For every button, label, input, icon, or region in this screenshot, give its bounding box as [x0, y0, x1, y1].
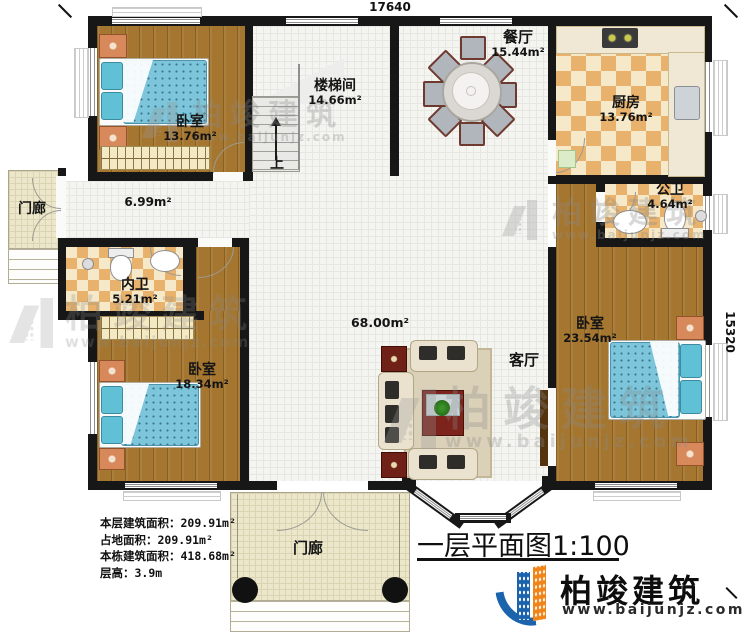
window-top-bedroom1 — [112, 18, 200, 24]
room-name: 公卫 — [632, 182, 708, 198]
porch-left-steps — [8, 248, 60, 284]
room-name: 楼梯间 — [293, 78, 377, 94]
watermark-logo-shape — [421, 389, 436, 449]
room-name: 客厅 — [492, 352, 556, 369]
bay-window-right — [506, 489, 545, 519]
dimension-tick — [724, 4, 738, 18]
watermark-text: 柏竣建筑 www.baijunjz.com — [445, 385, 693, 452]
window-sill-bedroom1 — [74, 48, 89, 118]
watermark-logo-shape — [41, 298, 54, 348]
porch-bottom-steps — [230, 600, 410, 632]
brand-logo-tower-orange — [533, 565, 546, 621]
sofa-cushion — [419, 346, 437, 360]
dimension-tick — [58, 4, 72, 18]
watermark-logo-shape — [396, 407, 414, 440]
pillow — [101, 92, 123, 120]
stats-block: 本层建筑面积：209.91m² 占地面积：209.91m² 本栋建筑面积：418… — [100, 515, 236, 581]
room-name: 厨房 — [588, 95, 664, 111]
end-table — [381, 452, 407, 478]
pillow — [680, 344, 702, 378]
door-opening-bedroom2 — [198, 238, 232, 247]
room-label-stairwell: 楼梯间 14.66m² — [293, 78, 377, 107]
room-label-inner-bath: 内卫 5.21m² — [100, 277, 170, 306]
nightstand — [676, 316, 704, 340]
nightstand — [99, 448, 125, 470]
dining-table-center — [466, 86, 476, 96]
window-sill-publicbath — [713, 194, 728, 234]
porch-column — [232, 577, 258, 603]
room-area: 4.64m² — [632, 198, 708, 211]
window-left-bedroom1 — [88, 48, 97, 116]
stairs-up-label: 上 — [264, 156, 290, 172]
room-area: 18.34m² — [162, 378, 242, 391]
room-label-public-bath: 公卫 4.64m² — [632, 182, 708, 211]
stat-label: 本栋建筑面积： — [100, 549, 181, 563]
window-south-bedroom2 — [125, 483, 217, 488]
watermark-logo-icon — [13, 293, 63, 353]
living-area-value: 68.00m² — [342, 316, 418, 330]
drawing-title-underline — [417, 558, 619, 561]
nightstand — [99, 34, 127, 58]
room-name: 内卫 — [100, 277, 170, 293]
pillow — [101, 416, 123, 444]
room-area: 15.44m² — [480, 46, 556, 59]
floor-plan-canvas: 柏竣建筑 www.baijunjz.com 柏竣建筑 www.baijunjz.… — [0, 0, 750, 632]
wardrobe — [100, 146, 210, 170]
watermark-name: 柏竣建筑 — [445, 385, 693, 433]
room-area: 5.21m² — [100, 293, 170, 306]
watermark-logo-shape — [527, 200, 537, 240]
window-sill-south-bedroom3 — [593, 491, 681, 501]
room-area: 13.76m² — [150, 130, 230, 143]
brand-logo-tower-blue — [517, 572, 530, 620]
room-name: 卧室 — [550, 316, 630, 332]
door-opening-bedroom1 — [213, 172, 243, 181]
watermark-url: www.baijunjz.com — [65, 335, 257, 351]
room-area: 14.66m² — [293, 94, 377, 107]
sofa-cushion — [447, 346, 465, 360]
porch-column — [382, 577, 408, 603]
dimension-right: 15320 — [723, 302, 737, 362]
hallway-area-value: 6.99m² — [116, 196, 180, 210]
watermark-logo-shape — [510, 212, 522, 234]
window-sill-south-bedroom2 — [123, 491, 221, 501]
shower-knob — [82, 258, 94, 270]
end-table — [381, 346, 407, 372]
room-label-kitchen: 厨房 13.76m² — [588, 95, 664, 124]
stat-row: 本栋建筑面积：418.68m² — [100, 548, 236, 565]
room-label-dining: 餐厅 15.44m² — [480, 29, 556, 59]
window-top-dining — [440, 18, 512, 24]
dining-chair — [459, 122, 485, 146]
room-name: 卧室 — [150, 114, 230, 130]
room-label-living: 客厅 — [492, 352, 556, 369]
wall-stair-dining — [390, 26, 399, 176]
watermark-url: www.baijunjz.com — [445, 433, 693, 452]
sofa-top — [410, 340, 478, 372]
room-area: 68.00m² — [342, 316, 418, 330]
stat-row: 占地面积：209.91m² — [100, 532, 236, 549]
watermark-url: www.baijunjz.com — [552, 229, 707, 242]
window-sill-top — [112, 7, 202, 17]
stat-label: 本层建筑面积： — [100, 516, 181, 530]
room-label-bedroom1: 卧室 13.76m² — [150, 114, 230, 143]
bay-window-left — [414, 489, 453, 519]
window-south-bedroom3 — [595, 483, 677, 488]
watermark-logo-icon — [388, 383, 448, 455]
sofa-cushion — [447, 455, 465, 469]
watermark-logo-shape — [19, 313, 34, 341]
nightstand — [99, 360, 125, 382]
watermark-logo-icon — [505, 196, 545, 244]
cutting-board — [558, 150, 576, 168]
dimension-tick — [725, 587, 737, 599]
kitchen-sink — [674, 86, 700, 120]
watermark: 柏竣建筑 www.baijunjz.com — [398, 385, 693, 452]
window-top-stair — [286, 18, 358, 24]
brand-website: www.baijunjz.com — [562, 602, 745, 618]
brand-logo-icon — [498, 564, 556, 626]
stove — [602, 28, 638, 48]
door-opening-kitchen — [548, 140, 556, 176]
room-name: 上 — [264, 156, 290, 172]
room-name: 门廊 — [280, 540, 336, 557]
pillow — [101, 386, 123, 414]
window-sill-kitchen — [713, 60, 728, 136]
room-name: 卧室 — [162, 362, 242, 378]
stat-value: 209.91m² — [158, 533, 213, 547]
pillow — [101, 62, 123, 90]
room-name: 门廊 — [10, 201, 54, 217]
wall-living-south-left — [245, 481, 277, 490]
stat-label: 层高： — [100, 566, 135, 580]
room-label-porch-left: 门廊 — [10, 201, 54, 217]
sofa-cushion — [419, 455, 437, 469]
stat-label: 占地面积： — [100, 533, 158, 547]
stat-value: 418.68m² — [181, 549, 236, 563]
room-label-bedroom2: 卧室 18.34m² — [162, 362, 242, 391]
room-area: 13.76m² — [588, 111, 664, 124]
dimension-top: 17640 — [353, 0, 427, 14]
room-area: 6.99m² — [116, 196, 180, 210]
bay-wall-bottom — [455, 513, 511, 523]
porch-rail-right — [399, 494, 400, 578]
room-label-porch-bottom: 门廊 — [280, 540, 336, 557]
bay-window-bottom — [460, 515, 506, 520]
stat-value: 3.9m — [135, 566, 163, 580]
stat-value: 209.91m² — [181, 516, 236, 530]
innerbath-sink — [150, 250, 180, 272]
stat-row: 本层建筑面积：209.91m² — [100, 515, 236, 532]
room-area: 23.54m² — [550, 332, 630, 345]
brand-logo-swoosh — [496, 588, 537, 631]
stat-row: 层高：3.9m — [100, 565, 236, 582]
window-left-bedroom2 — [88, 362, 97, 434]
room-name: 餐厅 — [480, 29, 556, 46]
room-label-bedroom3: 卧室 23.54m² — [550, 316, 630, 345]
porch-rail-left — [237, 494, 238, 578]
